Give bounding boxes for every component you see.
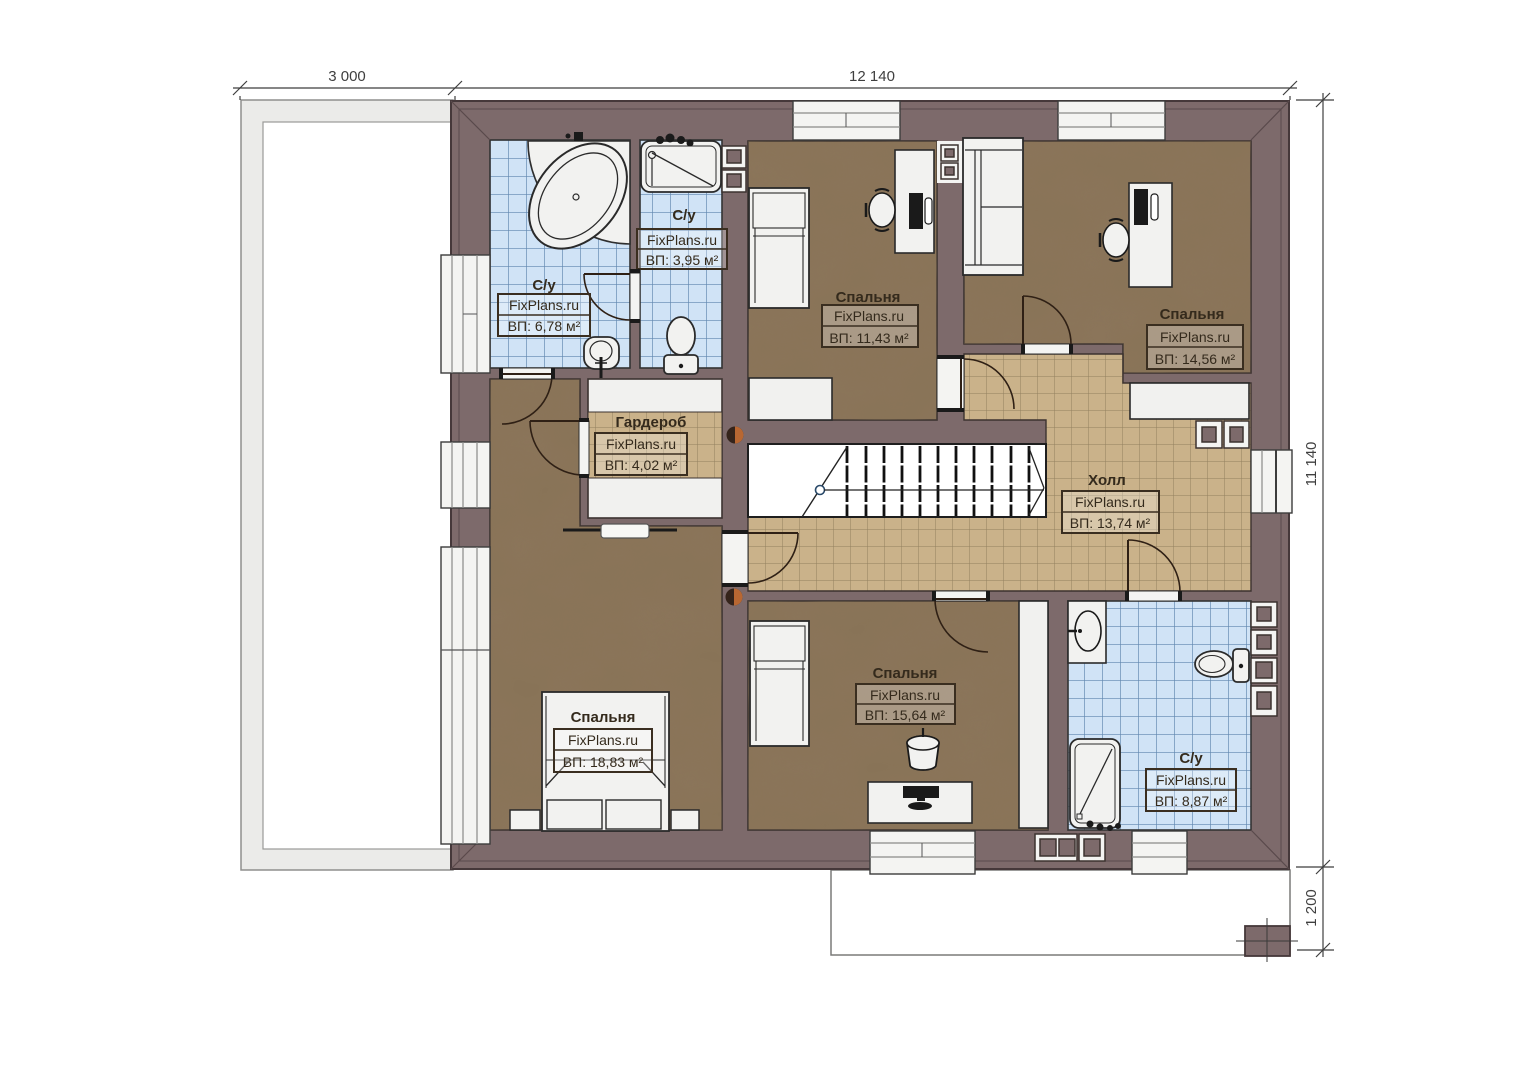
- svg-text:ВП: 13,74 м²: ВП: 13,74 м²: [1070, 515, 1151, 531]
- svg-text:Спальня: Спальня: [1160, 306, 1225, 323]
- svg-text:11 140: 11 140: [1303, 442, 1320, 487]
- svg-text:Гардероб: Гардероб: [616, 414, 687, 431]
- svg-text:FixPlans.ru: FixPlans.ru: [568, 732, 638, 748]
- svg-text:1 200: 1 200: [1303, 889, 1320, 927]
- svg-text:Спальня: Спальня: [836, 289, 901, 306]
- svg-text:FixPlans.ru: FixPlans.ru: [834, 308, 904, 324]
- svg-text:FixPlans.ru: FixPlans.ru: [647, 232, 717, 248]
- svg-text:12 140: 12 140: [849, 68, 895, 85]
- svg-text:С/у: С/у: [1179, 750, 1203, 767]
- svg-text:FixPlans.ru: FixPlans.ru: [1075, 494, 1145, 510]
- svg-text:ВП: 6,78 м²: ВП: 6,78 м²: [508, 318, 581, 334]
- svg-text:3 000: 3 000: [328, 68, 366, 85]
- svg-text:ВП: 18,83 м²: ВП: 18,83 м²: [563, 754, 644, 770]
- svg-text:FixPlans.ru: FixPlans.ru: [1160, 329, 1230, 345]
- svg-text:FixPlans.ru: FixPlans.ru: [606, 436, 676, 452]
- svg-text:С/у: С/у: [532, 277, 556, 294]
- svg-text:Холл: Холл: [1088, 472, 1126, 489]
- svg-text:FixPlans.ru: FixPlans.ru: [870, 687, 940, 703]
- svg-text:Спальня: Спальня: [571, 709, 636, 726]
- svg-text:ВП: 8,87 м²: ВП: 8,87 м²: [1155, 793, 1228, 809]
- svg-text:ВП: 11,43 м²: ВП: 11,43 м²: [829, 330, 909, 346]
- svg-text:FixPlans.ru: FixPlans.ru: [1156, 772, 1226, 788]
- svg-text:Спальня: Спальня: [873, 665, 938, 682]
- svg-text:FixPlans.ru: FixPlans.ru: [509, 297, 579, 313]
- svg-text:С/у: С/у: [672, 207, 696, 224]
- svg-text:ВП: 4,02 м²: ВП: 4,02 м²: [605, 457, 678, 473]
- svg-text:ВП: 3,95 м²: ВП: 3,95 м²: [646, 252, 719, 268]
- svg-text:ВП: 15,64 м²: ВП: 15,64 м²: [865, 707, 946, 723]
- svg-text:ВП: 14,56 м²: ВП: 14,56 м²: [1155, 351, 1236, 367]
